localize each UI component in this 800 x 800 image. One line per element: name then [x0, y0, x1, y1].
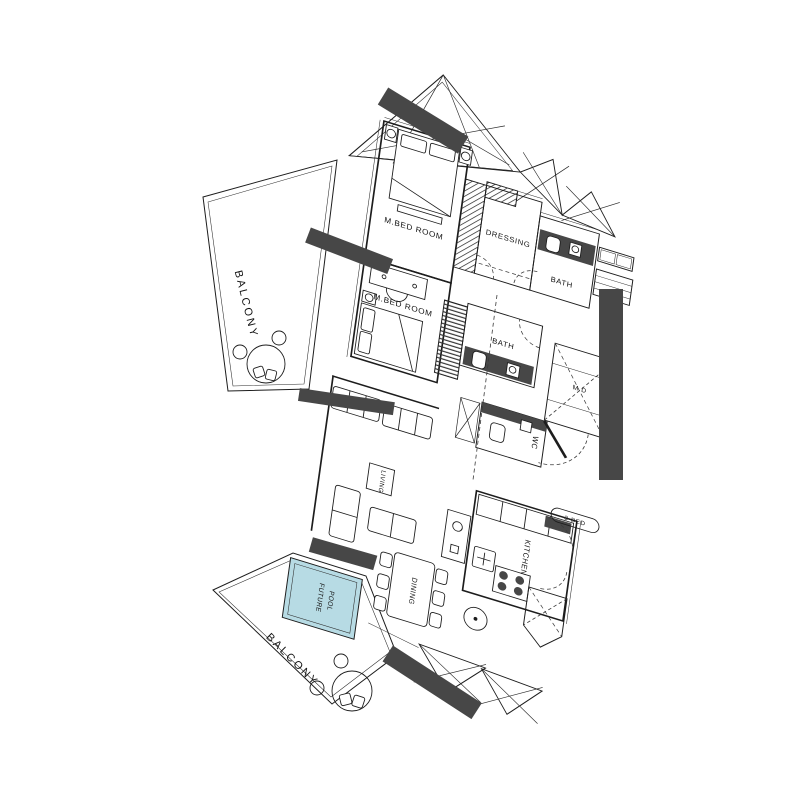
bathroom-2: BATH [434, 296, 542, 402]
bath-1-label: BATH [550, 275, 573, 290]
wc-room: WC [455, 396, 547, 468]
terrace-sawtooth-top [516, 150, 623, 236]
balcony-upper-chair-glyph [265, 369, 277, 381]
wc-label: WC [529, 435, 540, 451]
door-swing-arc [474, 255, 496, 279]
dining-chair [429, 612, 442, 629]
kitchen-peninsula [441, 509, 471, 563]
dressing-label: DRESSING [485, 228, 531, 250]
balcony-upper-chair-glyph [253, 366, 266, 379]
kitchen-label: KITCHEN [519, 538, 533, 576]
door-swing-arc [517, 319, 543, 348]
sofa-two-seat [329, 485, 361, 543]
kitchen: KITCHEN [437, 481, 581, 624]
main-door-label: M.D [572, 384, 587, 395]
balcony-lower-chair-glyph [339, 693, 352, 706]
shear-wall-pool [309, 537, 378, 570]
terrace-sawtooth-bottom [362, 623, 545, 724]
floor-plan-sheet: BALCONY BALCONY [0, 0, 800, 800]
dining-chair [379, 551, 392, 568]
balcony-lower-chair-glyph [351, 695, 365, 709]
dining-chair [432, 590, 445, 607]
loveseat [367, 507, 416, 545]
entry-shelf [598, 247, 634, 271]
balcony-upper-label: BALCONY [232, 269, 260, 339]
wardrobe-hatch [485, 182, 518, 207]
balcony-upper-outline [203, 160, 337, 391]
kitchen-counter [476, 494, 573, 543]
door-swing-arc [513, 265, 537, 291]
dining-chair [376, 573, 389, 590]
dining-chair [373, 595, 386, 612]
balcony-upper-chair [233, 345, 247, 359]
balcony-lower-chair [334, 654, 348, 668]
kitchen-sink-island [472, 546, 496, 572]
balcony-upper: BALCONY [203, 160, 337, 391]
floor-plan-drawing: BALCONY BALCONY [0, 0, 800, 800]
balcony-lower-label: BALCONY [263, 631, 321, 689]
shear-wall-mid-upper [305, 228, 393, 274]
future-pool: FUTURE POOL [282, 558, 362, 640]
balcony-upper-chair [272, 331, 286, 345]
bath-2-label: BATH [492, 336, 515, 351]
toilet [489, 422, 506, 444]
dining-chair [435, 568, 448, 585]
shear-wall-right [599, 289, 623, 480]
